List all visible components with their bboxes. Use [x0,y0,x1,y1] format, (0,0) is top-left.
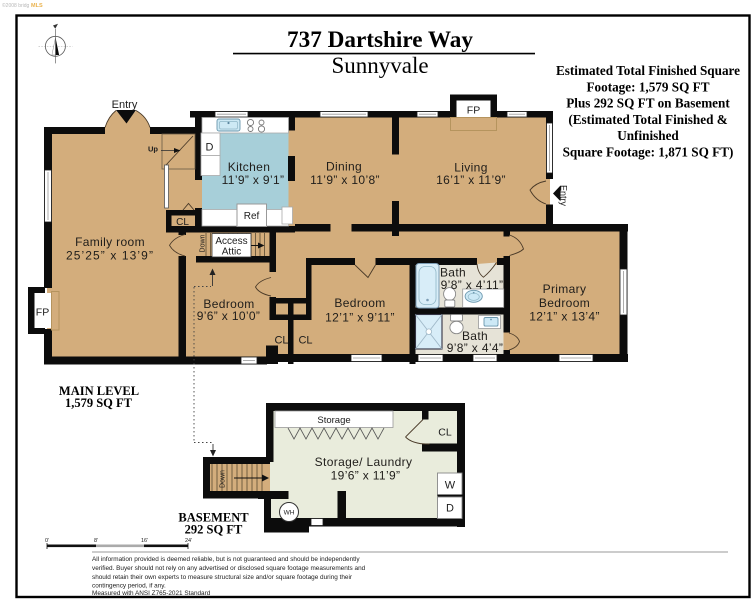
svg-text:Square Footage: 1,871 SQ FT): Square Footage: 1,871 SQ FT) [563,145,734,160]
svg-text:25’25” x 13’9”: 25’25” x 13’9” [66,249,154,263]
svg-text:©2008 bridg: ©2008 bridg [2,2,30,9]
svg-text:Kitchen: Kitchen [228,160,270,174]
svg-text:Unfinished: Unfinished [617,128,679,143]
svg-text:9’8” x 4’4”: 9’8” x 4’4” [447,341,504,355]
svg-text:12’1” x 13’4”: 12’1” x 13’4” [529,310,600,324]
svg-text:(Estimated Total Finished &: (Estimated Total Finished & [568,112,727,127]
svg-text:1,579 SQ FT: 1,579 SQ FT [65,396,133,410]
svg-text:Footage: 1,579 SQ FT: Footage: 1,579 SQ FT [586,79,709,94]
svg-text:24’: 24’ [185,538,192,544]
svg-text:Sunnyvale: Sunnyvale [331,53,428,78]
svg-text:Entry: Entry [559,185,569,207]
svg-text:Family room: Family room [75,235,145,249]
svg-text:Bedroom: Bedroom [539,296,590,310]
svg-text:Down: Down [220,470,227,488]
svg-text:CL: CL [274,335,288,347]
svg-text:Measured with ANSI Z765-2021 S: Measured with ANSI Z765-2021 Standard [92,590,211,597]
svg-text:W: W [445,480,456,492]
svg-text:737 Dartshire Way: 737 Dartshire Way [287,27,473,53]
svg-text:12’1” x 9’11”: 12’1” x 9’11” [325,311,395,325]
svg-text:CL: CL [438,427,452,439]
svg-text:292 SQ FT: 292 SQ FT [185,523,243,537]
svg-text:16’1” x 11’9”: 16’1” x 11’9” [436,173,506,187]
svg-text:Bedroom: Bedroom [334,296,385,310]
svg-text:All information provided is de: All information provided is deemed relia… [92,556,360,563]
svg-text:Estimated Total Finished Squar: Estimated Total Finished Square [556,63,740,78]
svg-text:D: D [206,142,214,154]
svg-text:Plus 292 SQ FT on Basement: Plus 292 SQ FT on Basement [566,96,730,111]
svg-text:CL: CL [176,217,189,228]
svg-text:Up: Up [148,145,158,154]
svg-text:11’9” x 10’8”: 11’9” x 10’8” [310,173,380,187]
svg-text:16’: 16’ [141,538,148,544]
svg-text:FP: FP [36,307,49,319]
svg-text:8’: 8’ [94,538,98,544]
svg-text:contingency period, if any.: contingency period, if any. [92,583,166,590]
svg-text:Entry: Entry [112,99,138,111]
svg-text:FP: FP [467,105,480,117]
svg-text:Down: Down [200,234,207,252]
svg-text:MLS: MLS [31,3,43,9]
svg-text:Primary: Primary [543,282,587,296]
svg-text:WH: WH [284,510,295,517]
svg-text:Storage: Storage [317,415,350,426]
svg-text:9’8” x 4’11”: 9’8” x 4’11” [441,278,504,292]
svg-text:D: D [446,503,454,515]
svg-text:should retain their own expert: should retain their own experts to measu… [92,574,353,581]
svg-text:Storage/ Laundry: Storage/ Laundry [315,455,413,469]
svg-text:Attic: Attic [222,247,241,258]
svg-text:Dining: Dining [326,160,362,174]
svg-text:19’6” x 11’9”: 19’6” x 11’9” [331,469,401,483]
svg-text:9’6” x 10’0”: 9’6” x 10’0” [197,309,261,323]
svg-text:CL: CL [298,335,312,347]
svg-text:verified. Buyer should not rel: verified. Buyer should not rely on any a… [92,565,366,572]
svg-text:Access: Access [215,236,247,247]
svg-text:Ref: Ref [244,211,260,222]
svg-text:11’9” x 9’1”: 11’9” x 9’1” [222,173,285,187]
